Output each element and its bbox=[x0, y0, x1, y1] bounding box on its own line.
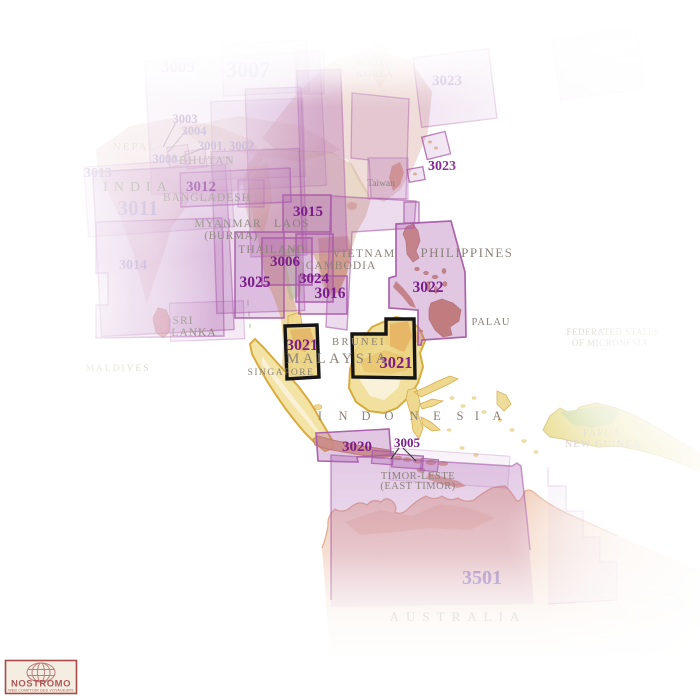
svg-text:D: D bbox=[361, 409, 370, 423]
svg-text:VIETNAM: VIETNAM bbox=[332, 248, 396, 260]
svg-text:3016: 3016 bbox=[315, 285, 346, 302]
svg-text:3022: 3022 bbox=[413, 279, 444, 296]
svg-text:WEB COMPTOIR DES VOYAGEURS: WEB COMPTOIR DES VOYAGEURS bbox=[8, 689, 74, 693]
svg-text:(EAST TIMOR): (EAST TIMOR) bbox=[380, 481, 455, 492]
svg-text:PALAU: PALAU bbox=[471, 317, 510, 328]
svg-text:THAILAND: THAILAND bbox=[238, 244, 305, 256]
svg-text:MALAYSIA: MALAYSIA bbox=[286, 351, 389, 367]
svg-text:Taiwan: Taiwan bbox=[367, 179, 395, 189]
svg-text:E: E bbox=[433, 409, 441, 423]
svg-text:SINGAPORE: SINGAPORE bbox=[248, 368, 315, 378]
svg-text:N: N bbox=[338, 409, 347, 423]
svg-text:3025: 3025 bbox=[240, 274, 271, 291]
svg-text:3006: 3006 bbox=[270, 254, 301, 270]
svg-text:BRUNEI: BRUNEI bbox=[332, 337, 386, 348]
svg-text:3005: 3005 bbox=[394, 435, 421, 450]
svg-text:A: A bbox=[492, 409, 501, 423]
svg-text:I: I bbox=[475, 409, 479, 423]
svg-text:I: I bbox=[318, 409, 322, 423]
svg-text:LAOS: LAOS bbox=[274, 218, 310, 230]
svg-text:S: S bbox=[457, 409, 464, 423]
svg-text:N: N bbox=[409, 409, 418, 423]
svg-text:3020: 3020 bbox=[342, 439, 372, 455]
svg-text:CAMBODIA: CAMBODIA bbox=[306, 260, 377, 272]
svg-text:O: O bbox=[384, 409, 393, 423]
